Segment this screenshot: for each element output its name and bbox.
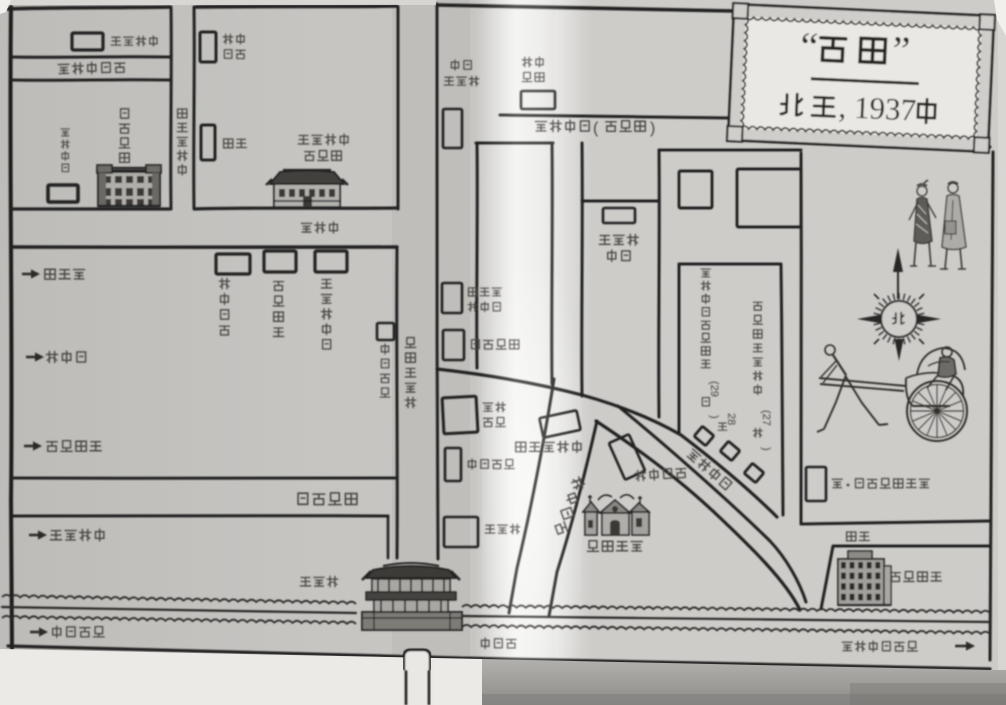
svg-text:(29: (29 xyxy=(708,381,720,397)
svg-text:28: 28 xyxy=(725,413,737,425)
svg-text:“: “ xyxy=(799,23,819,69)
svg-text:): ) xyxy=(708,415,720,419)
svg-text:): ) xyxy=(760,447,772,451)
svg-text:”: ” xyxy=(891,27,911,73)
svg-text:(27: (27 xyxy=(760,410,772,426)
svg-text:, 1937: , 1937 xyxy=(838,89,917,127)
svg-text:): ) xyxy=(650,120,655,137)
svg-text:(: ( xyxy=(593,120,599,137)
